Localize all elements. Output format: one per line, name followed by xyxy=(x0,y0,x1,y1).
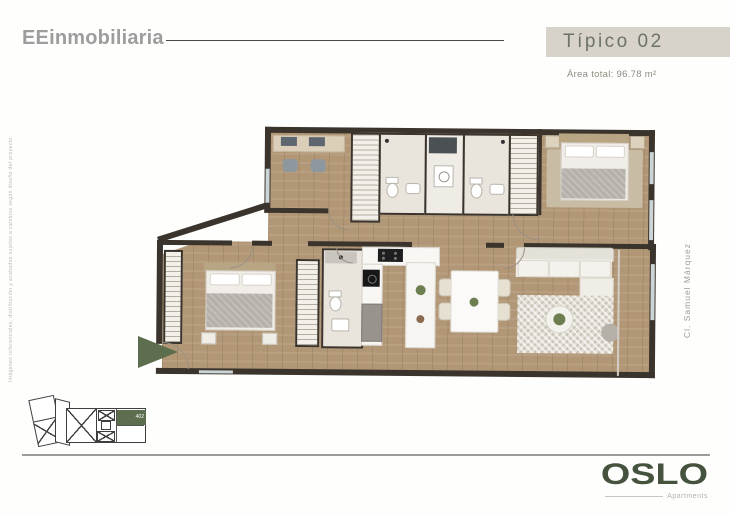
bed-blanket xyxy=(206,293,272,328)
footer-brand: OSLO Apartments xyxy=(596,460,708,500)
shower-head-icon xyxy=(501,140,505,144)
laundry-cabinet xyxy=(429,137,457,153)
disclaimer-vertical-text: Imágenes referenciales, distribución y a… xyxy=(8,92,14,382)
bed2-stool-1 xyxy=(201,332,216,344)
window-study xyxy=(265,169,269,203)
bed-pillow xyxy=(565,145,594,157)
fridge-icon xyxy=(361,304,382,342)
laundry-closet xyxy=(424,133,465,215)
toilet-bowl-icon xyxy=(386,183,398,198)
keyplan-highlighted-unit: 402 xyxy=(117,410,146,425)
company-logo: EEinmobiliaria xyxy=(22,27,164,50)
bed-pillow xyxy=(210,273,240,285)
sink-icon xyxy=(405,183,420,194)
wardrobe-hall-1 xyxy=(350,133,381,223)
entrance-arrow-icon xyxy=(138,336,178,368)
keyplan-building-bar: 402 xyxy=(66,408,146,443)
floorplan xyxy=(149,110,663,384)
street-name-vertical-text: Cl. Samuel Márquez xyxy=(682,198,692,338)
desk-chair-2 xyxy=(311,159,326,172)
plant-icon xyxy=(469,298,478,307)
bathroom-1 xyxy=(378,133,427,215)
sink-icon xyxy=(489,184,504,195)
header-divider-line xyxy=(166,40,504,41)
bed2-stool-2 xyxy=(262,333,277,345)
shower-head-icon xyxy=(385,139,389,143)
sink-icon xyxy=(331,318,349,331)
bedroom2-wardrobe xyxy=(295,259,320,347)
keyplan-lobby xyxy=(101,421,111,430)
coffee-table xyxy=(545,305,573,333)
plant-icon xyxy=(553,313,565,325)
washer-door-icon xyxy=(439,171,450,182)
wall-study-bottom xyxy=(264,208,328,214)
nightstand-2 xyxy=(630,136,645,149)
bathroom-3 xyxy=(321,248,364,348)
bed2 xyxy=(205,270,276,331)
window-master-2 xyxy=(649,200,653,240)
bathroom-2 xyxy=(462,133,511,215)
wall-bedroom2-top-a xyxy=(157,240,232,246)
area-total-label: Área total: 96.78 m² xyxy=(567,69,656,80)
unit-title-banner: Típico 02 xyxy=(546,27,730,57)
floorplan-page: { "header": { "brand": "EEinmobiliaria",… xyxy=(0,0,730,516)
window-living xyxy=(650,264,654,320)
wall-bedroom2-top-b xyxy=(252,241,272,246)
window-entry xyxy=(199,370,233,373)
dining-table xyxy=(450,270,499,332)
keyplan-elevator xyxy=(97,431,115,442)
bowl-icon xyxy=(416,315,424,323)
keyplan-stair-core xyxy=(67,409,97,442)
wall-left-lower xyxy=(156,240,163,344)
bedroom2-closet xyxy=(163,250,183,344)
sofa-cushion xyxy=(549,260,580,277)
desk-monitor-2 xyxy=(309,137,325,146)
oslo-logo: OSLO xyxy=(567,460,708,490)
bed-pillow xyxy=(596,146,625,158)
keyplan: 402 xyxy=(26,390,166,454)
keyplan-elevator xyxy=(98,410,115,421)
wall-living-top-a xyxy=(486,243,504,248)
washer-icon xyxy=(434,165,454,187)
bed-pillow xyxy=(242,274,272,286)
desk-monitor-1 xyxy=(281,137,297,146)
nightstand-1 xyxy=(545,135,560,148)
toilet-bowl-icon xyxy=(470,184,482,199)
cooktop-icon xyxy=(378,249,403,262)
desk-chair-1 xyxy=(283,159,298,172)
window-master-1 xyxy=(650,152,654,184)
unit-title: Típico 02 xyxy=(546,27,664,57)
bed-blanket xyxy=(561,168,625,199)
oven-icon xyxy=(363,270,380,287)
sofa-seat xyxy=(516,259,612,278)
oslo-logo-line xyxy=(605,496,663,497)
plant-icon xyxy=(416,285,426,295)
oslo-tagline: Apartments xyxy=(667,493,708,500)
sofa-cushion xyxy=(518,260,549,277)
sofa-cushion xyxy=(580,261,611,278)
footer-divider xyxy=(22,454,710,456)
master-bed xyxy=(560,142,629,201)
kitchen-island xyxy=(405,262,436,348)
toilet-bowl-icon xyxy=(329,296,341,311)
wardrobe-hall-2 xyxy=(508,134,539,216)
